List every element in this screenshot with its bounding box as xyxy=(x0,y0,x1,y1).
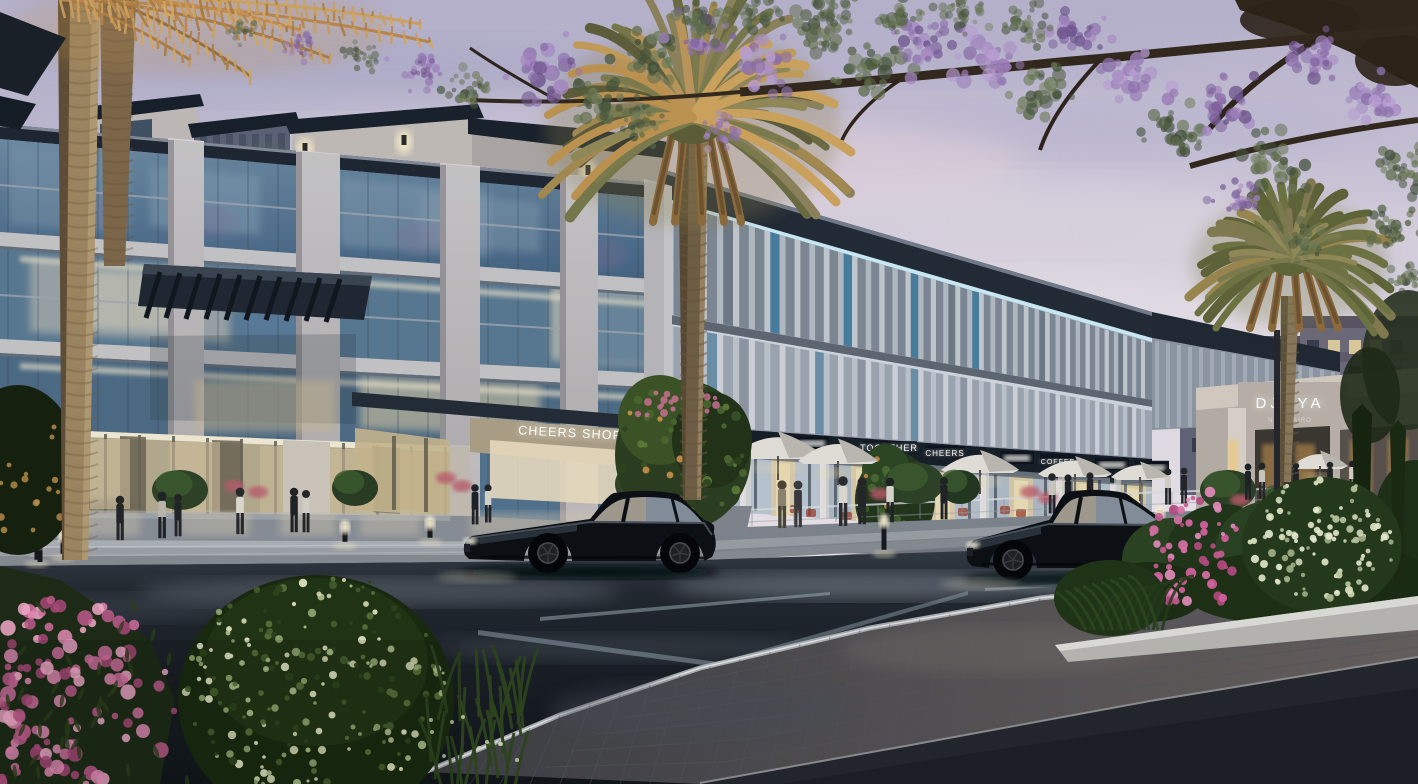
svg-text:CHEERS: CHEERS xyxy=(925,449,964,458)
